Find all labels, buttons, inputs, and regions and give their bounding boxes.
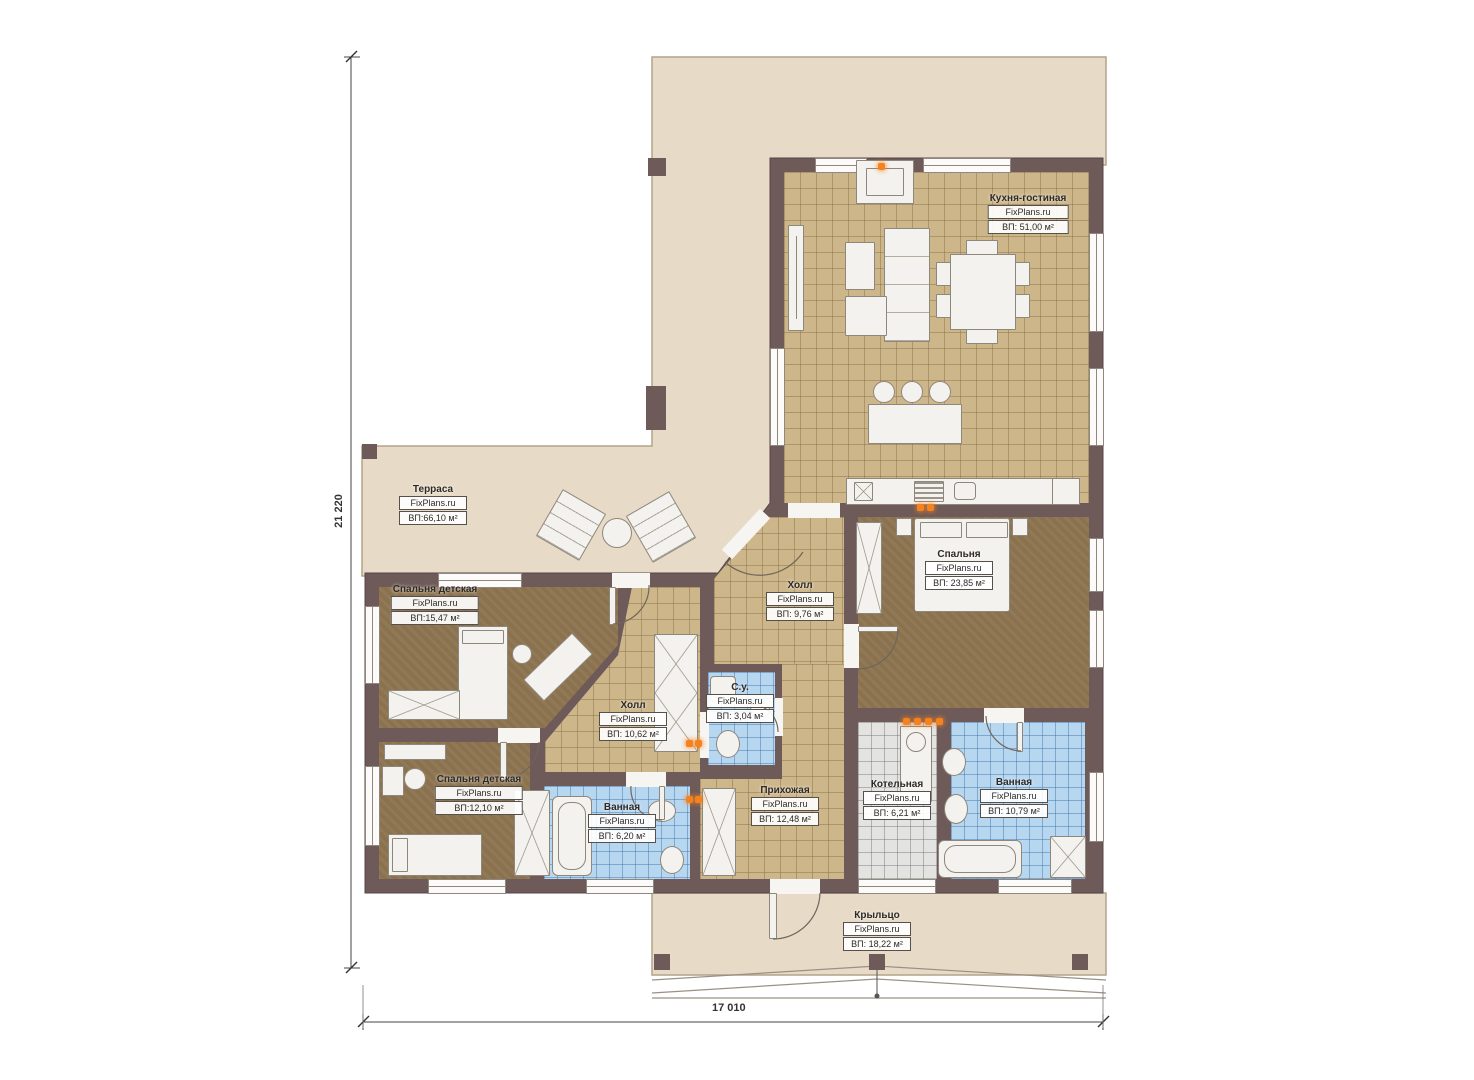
toilet — [944, 794, 968, 824]
door-leaf — [659, 786, 665, 820]
dining-chair — [1014, 294, 1030, 318]
room-label-bedroom-master: Спальня FixPlans.ru ВП: 23,85 м² — [925, 549, 993, 590]
room-label-hall-lower: Холл FixPlans.ru ВП: 10,62 м² — [599, 700, 667, 741]
room-name: Спальня детская — [391, 584, 479, 595]
brand-watermark: FixPlans.ru — [399, 496, 467, 510]
window — [858, 879, 936, 894]
room-label-bathroom-2: Ванная FixPlans.ru ВП: 10,79 м² — [980, 777, 1048, 818]
door-swing — [773, 893, 820, 939]
window — [428, 879, 506, 894]
room-name: Терраса — [411, 484, 455, 495]
room-name: Котельная — [869, 779, 925, 790]
bar-stool — [929, 381, 951, 403]
toilet — [660, 846, 684, 874]
room-label-terrace: Терраса FixPlans.ru ВП:66,10 м² — [399, 484, 467, 525]
dining-table — [950, 254, 1016, 330]
window — [770, 348, 785, 446]
porch-pillar — [1072, 954, 1088, 970]
brand-watermark: FixPlans.ru — [706, 694, 774, 708]
brand-watermark: FixPlans.ru — [751, 797, 819, 811]
brand-watermark: FixPlans.ru — [766, 592, 834, 606]
room-area: ВП: 9,76 м² — [766, 607, 834, 621]
room-label-bathroom-1: Ванная FixPlans.ru ВП: 6,20 м² — [588, 802, 656, 843]
porch-steps — [652, 966, 1106, 998]
window — [586, 879, 654, 894]
door-gap-wc — [775, 698, 783, 736]
room-label-wc: С.у. FixPlans.ru ВП: 3,04 м² — [706, 682, 774, 723]
room-label-entry-hall: Прихожая FixPlans.ru ВП: 12,48 м² — [751, 785, 819, 826]
heat-point-icon — [917, 504, 924, 511]
window — [998, 879, 1072, 894]
room-label-kitchen-living: Кухня-гостиная FixPlans.ru ВП: 51,00 м² — [988, 193, 1069, 234]
room-area: ВП: 51,00 м² — [988, 220, 1069, 234]
room-area: ВП: 23,85 м² — [925, 576, 993, 590]
heat-point-icon — [686, 740, 693, 747]
brand-watermark: FixPlans.ru — [599, 712, 667, 726]
boiler-dial — [906, 732, 926, 752]
room-area: ВП: 6,20 м² — [588, 829, 656, 843]
porch-pillar — [869, 954, 885, 970]
pillow — [462, 630, 504, 644]
window — [365, 766, 380, 846]
heat-point-icon — [925, 718, 932, 725]
heat-point-icon — [903, 718, 910, 725]
kitchen-island — [868, 404, 962, 444]
terrace-pillar — [646, 386, 666, 430]
brand-watermark: FixPlans.ru — [925, 561, 993, 575]
room-name: Прихожая — [758, 785, 811, 796]
pillow — [392, 838, 408, 872]
room-name: Ванная — [994, 777, 1034, 788]
room-area: ВП:12,10 м² — [435, 801, 523, 815]
coffee-table — [845, 242, 875, 290]
brand-watermark: FixPlans.ru — [391, 596, 479, 610]
room-label-hall-upper: Холл FixPlans.ru ВП: 9,76 м² — [766, 580, 834, 621]
pillow — [966, 522, 1008, 538]
heat-point-icon — [914, 718, 921, 725]
room-name: С.у. — [729, 682, 750, 693]
heat-point-icon — [927, 504, 934, 511]
desk-chair — [404, 768, 426, 790]
room-area: ВП:15,47 м² — [391, 611, 479, 625]
brand-watermark: FixPlans.ru — [843, 922, 911, 936]
nightstand — [1012, 518, 1028, 536]
toilet — [716, 730, 740, 758]
dim-tick — [1098, 1016, 1109, 1027]
window — [1089, 610, 1104, 668]
shower — [1050, 836, 1086, 878]
door-gap-bedroom-1 — [612, 573, 650, 588]
brand-watermark: FixPlans.ru — [435, 786, 523, 800]
kitchen-sink-unit — [854, 482, 873, 501]
fireplace-inner — [866, 168, 904, 196]
dining-chair — [966, 328, 998, 344]
terrace-armchair — [536, 489, 606, 561]
room-name: Крыльцо — [852, 910, 902, 921]
pillow — [920, 522, 962, 538]
terrace-armchair — [626, 491, 696, 563]
room-area: ВП: 18,22 м² — [843, 937, 911, 951]
heat-point-icon — [686, 796, 693, 803]
dining-chair — [1014, 262, 1030, 286]
brand-watermark: FixPlans.ru — [588, 814, 656, 828]
porch-pillar — [654, 954, 670, 970]
door-leaf — [769, 893, 777, 939]
door-gap-bathroom-2 — [984, 708, 1024, 723]
room-area: ВП: 6,21 м² — [863, 806, 931, 820]
terrace-pillar — [362, 444, 377, 459]
wardrobe — [388, 690, 460, 720]
porch-center-dot — [875, 994, 880, 999]
room-name: Холл — [785, 580, 814, 591]
door-gap-porch — [770, 879, 820, 894]
room-area: ВП: 10,79 м² — [980, 804, 1048, 818]
room-label-bedroom-child-1: Спальня детская FixPlans.ru ВП:15,47 м² — [391, 584, 479, 625]
counter-appliance — [1052, 478, 1080, 505]
window — [1089, 233, 1104, 332]
room-name: Кухня-гостиная — [988, 193, 1069, 204]
wardrobe — [856, 522, 882, 614]
desk — [382, 766, 404, 796]
window — [1089, 772, 1104, 842]
sink — [942, 748, 966, 776]
heat-point-icon — [936, 718, 943, 725]
door-gap-master — [844, 624, 859, 668]
sofa — [884, 228, 930, 342]
door-leaf — [858, 626, 898, 632]
tv-panel — [788, 225, 804, 331]
door-gap-bathroom-1 — [626, 772, 666, 787]
nightstand — [896, 518, 912, 536]
brand-watermark: FixPlans.ru — [863, 791, 931, 805]
room-name: Холл — [618, 700, 647, 711]
heat-point-icon — [695, 796, 702, 803]
window — [1089, 538, 1104, 592]
dim-tick — [346, 51, 357, 62]
heat-point-icon — [695, 740, 702, 747]
sink — [954, 482, 976, 500]
stove — [914, 481, 944, 502]
room-label-bedroom-child-2: Спальня детская FixPlans.ru ВП:12,10 м² — [435, 774, 523, 815]
desk-chair — [512, 644, 532, 664]
room-label-porch: Крыльцо FixPlans.ru ВП: 18,22 м² — [843, 910, 911, 951]
window — [923, 158, 1011, 173]
bathtub-inner — [944, 845, 1016, 873]
heat-point-icon — [878, 163, 885, 170]
floor-plan-canvas: Терраса FixPlans.ru ВП:66,10 м² Кухня-го… — [0, 0, 1474, 1080]
window — [1089, 368, 1104, 446]
entry-closet — [702, 788, 736, 876]
window — [365, 606, 380, 684]
terrace-side-table — [602, 518, 632, 548]
bar-stool — [873, 381, 895, 403]
room-name: Спальня — [935, 549, 982, 560]
bar-stool — [901, 381, 923, 403]
bathtub-inner — [558, 802, 586, 870]
dim-tick — [346, 962, 357, 973]
room-name: Ванная — [602, 802, 642, 813]
door-gap-bedroom-2 — [498, 728, 540, 743]
door-leaf — [609, 587, 616, 625]
room-name: Спальня детская — [435, 774, 523, 785]
room-label-boiler-room: Котельная FixPlans.ru ВП: 6,21 м² — [863, 779, 931, 820]
room-area: ВП: 10,62 м² — [599, 727, 667, 741]
shelf — [384, 744, 446, 760]
sofa-chaise — [845, 296, 887, 336]
brand-watermark: FixPlans.ru — [988, 205, 1069, 219]
terrace-pillar — [648, 158, 666, 176]
room-area: ВП: 12,48 м² — [751, 812, 819, 826]
dim-tick — [358, 1016, 369, 1027]
brand-watermark: FixPlans.ru — [980, 789, 1048, 803]
dimension-label-horizontal: 17 010 — [712, 1002, 746, 1014]
room-area: ВП: 3,04 м² — [706, 709, 774, 723]
door-leaf — [1017, 722, 1023, 752]
opening-kitchen-hall — [788, 503, 840, 518]
room-area: ВП:66,10 м² — [399, 511, 467, 525]
dimension-label-vertical: 21 220 — [333, 494, 345, 528]
